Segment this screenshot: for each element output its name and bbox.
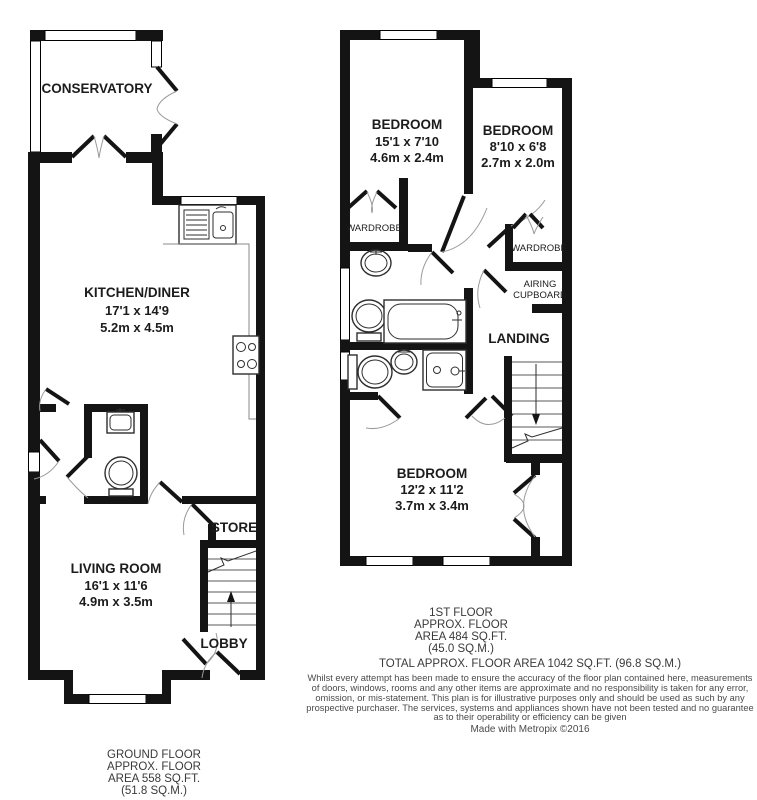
- disclaimer-line5: as to their operability or efficiency ca…: [433, 712, 626, 722]
- store-label: STORE: [211, 520, 257, 535]
- bathroom-sink: [361, 250, 391, 276]
- bedroom1-label: BEDROOM: [372, 117, 443, 132]
- kitchen-size-metric: 5.2m x 4.5m: [100, 320, 174, 335]
- disclaimer-line3: omission, or mis-statement. This plan is…: [315, 693, 745, 703]
- ground-floor-plan: CONSERVATORY KITCHEN/DINER 17'1 x 14'9 5…: [28, 30, 265, 797]
- first-caption-line1: 1ST FLOOR: [429, 607, 493, 619]
- lobby-label: LOBBY: [200, 636, 247, 651]
- window: [443, 557, 490, 566]
- bedroom3-size-imperial: 12'2 x 11'2: [400, 482, 463, 497]
- disclaimer-line1: Whilst every attempt has been made to en…: [308, 673, 753, 683]
- stairs-up-arrow: [227, 591, 235, 602]
- stairs-down-arrow: [532, 414, 540, 425]
- ground-caption-line4: (51.8 SQ.M.): [121, 785, 187, 797]
- window: [341, 268, 350, 340]
- living-room-size-imperial: 16'1 x 11'6: [84, 578, 147, 593]
- first-stairs: [512, 362, 562, 448]
- first-floor-plan: BEDROOM 15'1 x 7'10 4.6m x 2.4m BEDROOM …: [340, 30, 572, 655]
- kitchen-counter: [163, 244, 256, 419]
- shower-cubicle: [423, 350, 466, 390]
- window: [152, 41, 162, 67]
- window: [380, 31, 437, 40]
- bedroom3-size-metric: 3.7m x 3.4m: [395, 498, 469, 513]
- bedroom1-size-metric: 4.6m x 2.4m: [370, 150, 444, 165]
- ground-caption-line2: APPROX. FLOOR: [107, 761, 201, 773]
- kitchen-size-imperial: 17'1 x 14'9: [105, 303, 169, 318]
- floorplan-page: CONSERVATORY KITCHEN/DINER 17'1 x 14'9 5…: [0, 0, 757, 800]
- bathtub: [384, 300, 466, 343]
- bedroom2-size-metric: 2.7m x 2.0m: [481, 155, 555, 170]
- ground-caption-line3: AREA 558 SQ.FT.: [108, 773, 200, 785]
- wardrobe2-label: WARDROBE: [511, 243, 567, 254]
- window: [29, 452, 40, 472]
- bedroom2-size-imperial: 8'10 x 6'8: [490, 139, 547, 154]
- ground-caption-line1: GROUND FLOOR: [107, 749, 201, 761]
- kitchen-sink: [179, 205, 236, 244]
- airing-cupboard-label-line1: AIRING: [524, 279, 557, 290]
- first-floor-caption: 1ST FLOOR APPROX. FLOOR AREA 484 SQ.FT. …: [414, 607, 508, 655]
- window: [181, 197, 237, 205]
- bedroom1-size-imperial: 15'1 x 7'10: [375, 134, 439, 149]
- window: [45, 31, 136, 41]
- ground-floor-caption: GROUND FLOOR APPROX. FLOOR AREA 558 SQ.F…: [107, 749, 201, 797]
- total-floor-area: TOTAL APPROX. FLOOR AREA 1042 SQ.FT. (96…: [379, 658, 681, 670]
- living-room-size-metric: 4.9m x 3.5m: [79, 594, 153, 609]
- living-room-label: LIVING ROOM: [71, 561, 162, 576]
- wc-toilet: [105, 457, 137, 496]
- landing-label: LANDING: [488, 331, 550, 346]
- airing-cupboard-label-line2: CUPBOARD: [513, 290, 567, 301]
- bedroom2-label: BEDROOM: [483, 123, 554, 138]
- window: [366, 557, 413, 566]
- conservatory-label: CONSERVATORY: [41, 81, 152, 96]
- footer: TOTAL APPROX. FLOOR AREA 1042 SQ.FT. (96…: [306, 658, 753, 735]
- window: [492, 79, 547, 88]
- first-caption-line3: AREA 484 SQ.FT.: [415, 631, 507, 643]
- disclaimer-line2: of doors, windows, rooms and any other i…: [312, 683, 749, 693]
- bedroom3-label: BEDROOM: [397, 466, 468, 481]
- metropix-credit: Made with Metropix ©2016: [470, 724, 590, 735]
- kitchen-label: KITCHEN/DINER: [84, 285, 190, 300]
- ground-stairs: [208, 551, 256, 627]
- first-caption-line4: (45.0 SQ.M.): [428, 643, 494, 655]
- shower-room-sink: [391, 350, 417, 374]
- wardrobe1-label: WARDROBE: [346, 223, 402, 234]
- floorplan-canvas: CONSERVATORY KITCHEN/DINER 17'1 x 14'9 5…: [0, 0, 757, 800]
- window: [31, 41, 41, 152]
- first-caption-line2: APPROX. FLOOR: [414, 619, 508, 631]
- hob: [233, 336, 259, 374]
- wc-sink: [107, 408, 134, 433]
- shower-room-toilet: [348, 355, 392, 389]
- bathroom-toilet: [352, 300, 386, 341]
- bay-window: [89, 695, 146, 704]
